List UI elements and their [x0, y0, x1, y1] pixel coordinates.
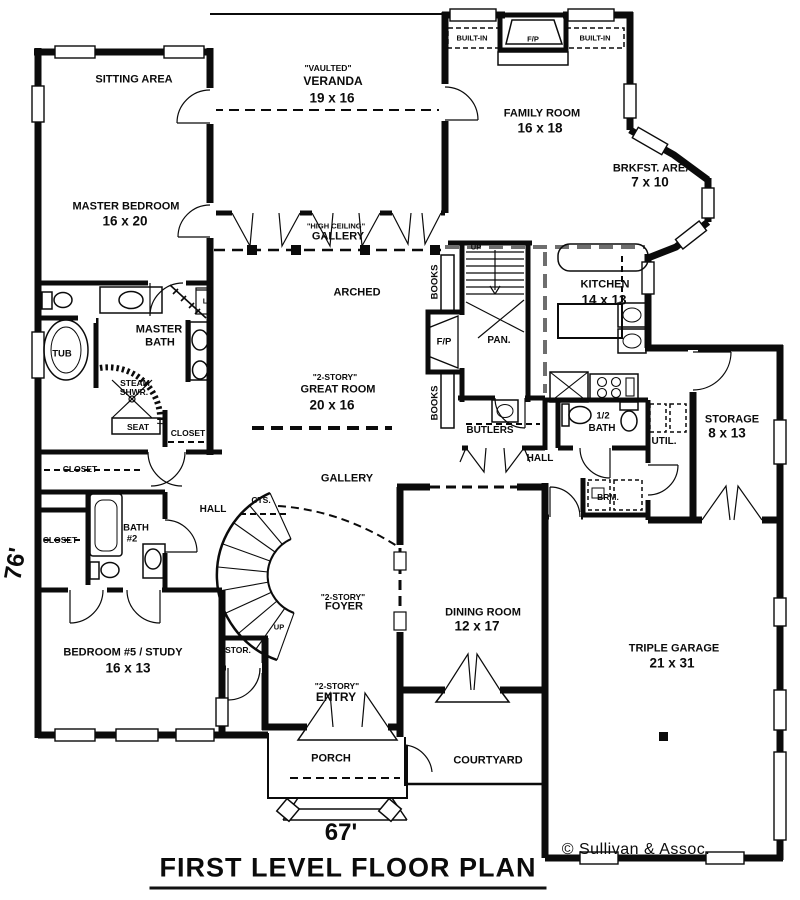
room-label-master-bedroom: MASTER BEDROOM: [73, 202, 180, 213]
label-closet-master: CLOSET: [171, 429, 205, 438]
room-label-garage: TRIPLE GARAGE: [629, 644, 719, 655]
room-label-pantry: PAN.: [487, 336, 510, 346]
label-fireplace-top: F/P: [527, 35, 539, 43]
room-label-veranda: VERANDA: [303, 75, 362, 87]
dim-label-garage: 21 x 31: [649, 656, 694, 670]
label-up-back-stair: UP: [471, 243, 481, 251]
label-closet-hall-upper: CLOSET: [63, 465, 97, 474]
room-label-master-bath-2: BATH: [145, 338, 175, 349]
room-label-sitting-area: SITTING AREA: [95, 75, 172, 86]
note-label-arched: ARCHED: [333, 288, 380, 299]
floor-plan-drawing: [0, 0, 800, 900]
room-label-half-bath-1: 1/2: [596, 411, 609, 421]
label-stor-closet: STOR.: [225, 646, 251, 655]
note-label-2story-entry: "2-STORY": [315, 682, 359, 691]
opening-jambs: [394, 552, 406, 630]
label-closet-hall-lower: CLOSET: [43, 536, 77, 545]
room-label-hall-right: HALL: [527, 454, 554, 464]
room-label-bath2-2: #2: [127, 534, 138, 544]
room-label-entry: ENTRY: [316, 691, 356, 703]
room-label-gallery-upper: GALLERY: [312, 232, 364, 243]
dim-label-dining-room: 12 x 17: [454, 619, 499, 633]
label-books-lower: BOOKS: [430, 386, 440, 421]
room-label-bedroom5: BEDROOM #5 / STUDY: [63, 648, 182, 659]
dim-label-overall-depth: 76': [1, 546, 30, 582]
label-seat: SEAT: [127, 423, 149, 432]
label-built-in-left: BUILT-IN: [456, 34, 487, 42]
dim-label-master-bedroom: 16 x 20: [102, 214, 147, 228]
room-label-bath2-1: BATH: [123, 523, 149, 533]
room-label-util: UTIL.: [652, 437, 677, 447]
floor-plan-page: SITTING AREA "VAULTED" VERANDA 19 x 16 B…: [0, 0, 800, 900]
room-label-courtyard: COURTYARD: [453, 756, 522, 767]
room-label-kitchen: KITCHEN: [581, 280, 630, 291]
note-label-2story-great: "2-STORY": [313, 373, 357, 382]
dim-label-brkfst-area: 7 x 10: [631, 175, 669, 189]
dim-label-kitchen: 14 x 13: [581, 293, 626, 307]
note-label-vaulted: "VAULTED": [305, 64, 352, 73]
label-books-upper: BOOKS: [430, 265, 440, 300]
room-label-master-bath-1: MASTER: [136, 325, 182, 336]
label-linen: L: [203, 297, 208, 305]
dim-label-veranda: 19 x 16: [309, 91, 354, 105]
label-built-in-right: BUILT-IN: [579, 34, 610, 42]
label-tub: TUB: [52, 349, 72, 359]
room-label-dining-room: DINING ROOM: [445, 608, 521, 619]
room-label-brkfst-area: BRKFST. AREA: [613, 164, 693, 175]
dim-label-storage: 8 x 13: [708, 426, 746, 440]
room-label-family-room: FAMILY ROOM: [504, 109, 580, 120]
room-label-butlers: BUTLERS: [466, 426, 513, 436]
room-label-porch: PORCH: [311, 754, 351, 765]
label-steam-2: SHWR.: [120, 388, 148, 397]
room-label-storage: STORAGE: [705, 415, 759, 426]
copyright-text: © Sullivan & Assoc.: [562, 842, 710, 858]
room-label-gallery-lower: GALLERY: [321, 474, 373, 485]
note-label-high-ceiling: "HIGH CEILING": [307, 222, 365, 230]
open-structures: [210, 14, 545, 820]
page-title: FIRST LEVEL FLOOR PLAN: [149, 855, 546, 890]
main-staircase: [217, 493, 294, 660]
back-staircase: [466, 250, 524, 338]
room-label-hall-left: HALL: [200, 505, 227, 515]
label-broom-closet: BRM.: [597, 493, 619, 502]
label-fireplace-great-room: F/P: [437, 337, 452, 347]
label-up-main-stair: UP: [274, 623, 284, 631]
dim-label-overall-width: 67': [325, 821, 357, 845]
room-label-great-room: GREAT ROOM: [301, 385, 376, 396]
room-label-foyer: FOYER: [325, 602, 363, 613]
room-label-half-bath-2: BATH: [588, 424, 615, 434]
label-coats-closet: CTS.: [251, 496, 270, 505]
dim-label-family-room: 16 x 18: [517, 121, 562, 135]
dim-label-bedroom5: 16 x 13: [105, 661, 150, 675]
dim-label-great-room: 20 x 16: [309, 398, 354, 412]
